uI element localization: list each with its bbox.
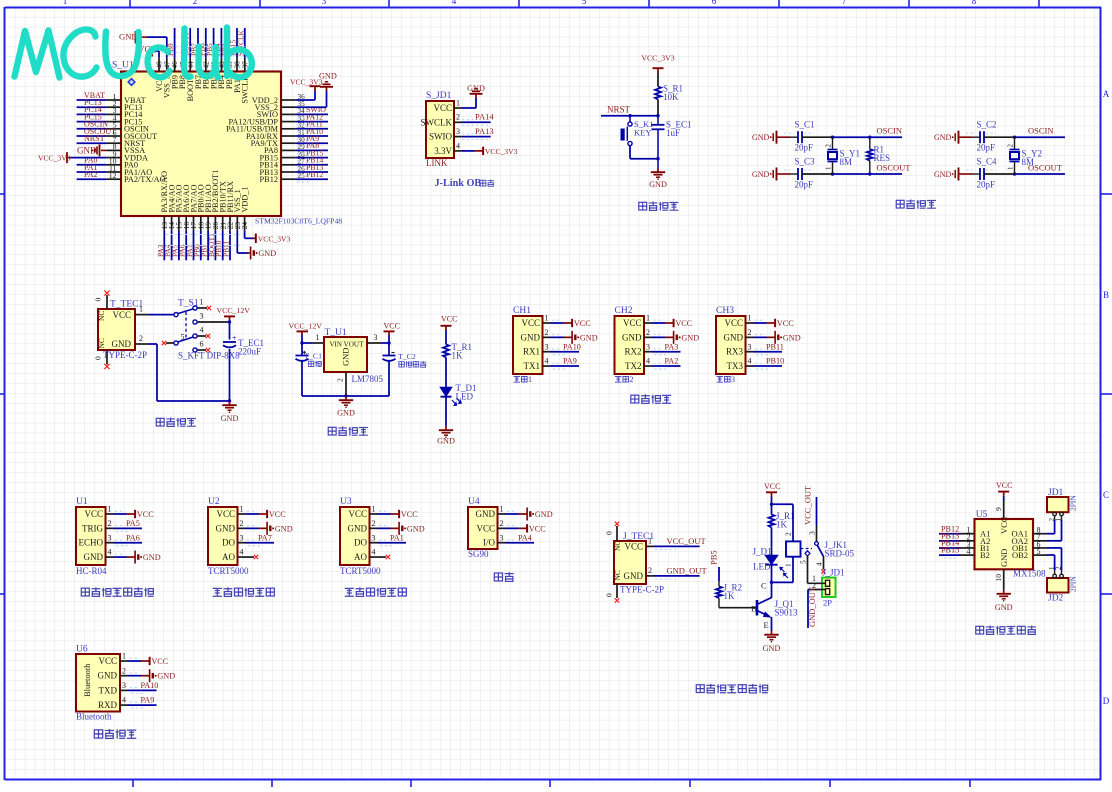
svg-text:1: 1	[748, 314, 752, 323]
svg-text:1: 1	[240, 505, 244, 514]
svg-text:1: 1	[1007, 166, 1015, 170]
svg-text:OSCIN: OSCIN	[1028, 126, 1054, 136]
svg-text:VOUT: VOUT	[344, 340, 365, 348]
svg-text:VCC: VCC	[401, 510, 418, 519]
svg-text:CH1: CH1	[513, 306, 531, 316]
svg-text:GND: GND	[319, 72, 337, 81]
svg-text:GND: GND	[476, 509, 496, 519]
svg-text:RXD: RXD	[98, 700, 118, 710]
svg-text:GND: GND	[84, 552, 104, 562]
svg-text:DO: DO	[222, 538, 235, 548]
svg-text:3: 3	[374, 333, 378, 342]
svg-text:TYPE-C-2P: TYPE-C-2P	[103, 350, 147, 360]
svg-text:3: 3	[500, 533, 504, 542]
svg-text:GND: GND	[934, 133, 952, 142]
svg-text:10: 10	[994, 574, 1003, 582]
svg-text:1: 1	[122, 652, 126, 661]
svg-text:C: C	[1103, 490, 1109, 500]
svg-text:3: 3	[122, 681, 126, 690]
svg-text:ECHO: ECHO	[79, 538, 104, 548]
svg-text:GND: GND	[580, 333, 598, 342]
svg-text:S_JD1: S_JD1	[426, 91, 452, 101]
svg-text:48: 48	[156, 61, 164, 69]
svg-text:2: 2	[139, 334, 143, 343]
svg-text:CH2: CH2	[615, 306, 633, 316]
svg-text:VCC: VCC	[764, 482, 780, 491]
svg-text:2P: 2P	[823, 598, 832, 608]
svg-text:VCC_12V: VCC_12V	[217, 306, 251, 315]
svg-text:DO: DO	[354, 538, 367, 548]
svg-text:4: 4	[200, 326, 204, 335]
svg-text:PB11: PB11	[766, 342, 784, 351]
svg-text:2PIN: 2PIN	[1069, 495, 1078, 511]
svg-text:J_JD1: J_JD1	[822, 568, 845, 578]
svg-text:2: 2	[372, 519, 376, 528]
svg-text:NC: NC	[613, 541, 622, 551]
svg-text:VCC: VCC	[999, 516, 1009, 534]
svg-text:GND: GND	[221, 414, 239, 423]
svg-text:T_C2: T_C2	[398, 352, 416, 361]
svg-text:VCC_12V: VCC_12V	[289, 322, 323, 331]
svg-text:SWCLK: SWCLK	[421, 117, 453, 127]
svg-text:HC-R04: HC-R04	[76, 566, 107, 576]
svg-text:4: 4	[456, 141, 460, 150]
svg-text:VCC: VCC	[84, 509, 103, 519]
svg-text:TX1: TX1	[524, 361, 541, 371]
svg-text:RES: RES	[874, 153, 891, 163]
svg-text:46: 46	[171, 61, 179, 69]
svg-text:VCC: VCC	[529, 524, 546, 533]
svg-text:TRIG: TRIG	[82, 523, 103, 533]
svg-text:VCC: VCC	[724, 318, 743, 328]
svg-text:GND: GND	[467, 84, 485, 93]
svg-text:GND: GND	[275, 524, 293, 533]
svg-text:VCC: VCC	[151, 657, 168, 666]
svg-text:S_KFT DIP-8X8: S_KFT DIP-8X8	[178, 351, 240, 361]
svg-text:NC: NC	[97, 311, 106, 321]
svg-text:GND: GND	[521, 332, 541, 342]
svg-text:VCC: VCC	[623, 318, 642, 328]
svg-text:PB12: PB12	[306, 170, 323, 179]
svg-text:1: 1	[648, 537, 652, 546]
svg-text:47: 47	[163, 61, 171, 69]
svg-text:GND: GND	[724, 332, 744, 342]
svg-text:VDD_1: VDD_1	[240, 187, 249, 213]
svg-text:1uF: 1uF	[666, 128, 680, 138]
svg-text:2: 2	[500, 519, 504, 528]
svg-text:1: 1	[500, 505, 504, 514]
svg-text:GND: GND	[216, 523, 236, 533]
svg-text:VCC: VCC	[521, 318, 540, 328]
svg-text:VCC: VCC	[433, 103, 452, 113]
svg-text:4: 4	[108, 548, 112, 557]
svg-text:0: 0	[94, 298, 103, 302]
svg-text:1: 1	[825, 166, 833, 170]
svg-text:VCC: VCC	[996, 481, 1012, 490]
svg-text:GND: GND	[77, 145, 97, 155]
svg-text:1: 1	[139, 305, 143, 314]
svg-text:VCC_3V3: VCC_3V3	[485, 147, 518, 156]
svg-text:GND: GND	[763, 644, 781, 653]
svg-text:8M: 8M	[1022, 157, 1035, 167]
svg-text:Bluetooth: Bluetooth	[76, 712, 112, 722]
svg-text:VCC: VCC	[777, 319, 794, 328]
svg-text:2: 2	[648, 566, 652, 575]
svg-text:GND_OUT: GND_OUT	[807, 586, 817, 627]
svg-text:20pF: 20pF	[795, 143, 814, 153]
svg-text:2PIN: 2PIN	[1069, 576, 1078, 592]
svg-text:2: 2	[240, 519, 244, 528]
svg-text:24: 24	[241, 222, 249, 230]
svg-text:1: 1	[108, 505, 112, 514]
svg-text:GND: GND	[934, 170, 952, 179]
svg-text:2: 2	[646, 328, 650, 337]
svg-text:5: 5	[582, 0, 587, 6]
svg-text:0: 0	[605, 593, 614, 597]
svg-text:VCC_3V3: VCC_3V3	[290, 78, 323, 87]
svg-text:1: 1	[1055, 518, 1063, 522]
svg-text:4: 4	[815, 562, 824, 566]
svg-text:2: 2	[122, 666, 126, 675]
svg-text:PA10: PA10	[563, 342, 581, 351]
svg-text:PA5: PA5	[126, 519, 140, 528]
svg-text:20pF: 20pF	[977, 180, 996, 190]
svg-text:5: 5	[799, 560, 808, 564]
svg-text:VCC_3V3: VCC_3V3	[258, 234, 291, 243]
svg-text:CH3: CH3	[716, 306, 734, 316]
svg-text:PA9: PA9	[141, 696, 155, 705]
svg-text:2: 2	[1055, 566, 1063, 570]
svg-text:GND: GND	[622, 332, 642, 342]
svg-text:TX3: TX3	[727, 361, 744, 371]
svg-text:E: E	[764, 620, 769, 630]
svg-text:RX2: RX2	[624, 347, 641, 357]
svg-text:VCC: VCC	[137, 510, 154, 519]
svg-text:4: 4	[372, 548, 376, 557]
svg-text:JD2: JD2	[1048, 594, 1064, 604]
svg-text:1: 1	[372, 505, 376, 514]
svg-text:S_C3: S_C3	[795, 157, 816, 167]
svg-text:RX3: RX3	[726, 347, 744, 357]
svg-text:220uF: 220uF	[238, 347, 261, 357]
svg-text:S9013: S9013	[775, 608, 799, 618]
svg-text:S_C4: S_C4	[977, 157, 998, 167]
svg-text:MX1508: MX1508	[1013, 569, 1046, 579]
svg-text:1K: 1K	[452, 351, 464, 361]
svg-text:5: 5	[1037, 547, 1041, 556]
svg-text:2: 2	[825, 144, 833, 148]
svg-text:RX1: RX1	[523, 347, 540, 357]
svg-text:VCC: VCC	[112, 310, 131, 320]
svg-text:GND: GND	[143, 553, 161, 562]
svg-text:4: 4	[240, 548, 244, 557]
svg-text:6: 6	[712, 0, 717, 6]
svg-text:GND: GND	[157, 672, 175, 681]
svg-text:VCC: VCC	[348, 509, 367, 519]
svg-text:TCRT5000: TCRT5000	[208, 566, 249, 576]
svg-text:1: 1	[784, 563, 793, 567]
svg-text:0: 0	[605, 531, 614, 535]
svg-text:2: 2	[545, 328, 549, 337]
svg-text:1: 1	[200, 298, 204, 307]
svg-text:GND: GND	[407, 524, 425, 533]
svg-text:2: 2	[1007, 144, 1015, 148]
svg-text:STM32F103C8T6_LQFP48: STM32F103C8T6_LQFP48	[255, 217, 342, 226]
svg-text:3: 3	[322, 0, 327, 6]
svg-text:3: 3	[808, 531, 817, 535]
svg-text:4: 4	[646, 357, 650, 366]
svg-text:OSCOUT: OSCOUT	[877, 163, 912, 173]
svg-text:1: 1	[63, 0, 68, 6]
svg-text:PB12: PB12	[260, 175, 278, 184]
svg-text:PA14: PA14	[475, 112, 494, 122]
svg-text:VCC: VCC	[441, 315, 457, 324]
svg-text:PB11: PB11	[222, 241, 231, 257]
svg-text:AO: AO	[354, 552, 367, 562]
svg-text:PA6: PA6	[126, 533, 140, 542]
svg-text:LM7805: LM7805	[352, 374, 384, 384]
svg-text:U3: U3	[340, 497, 352, 507]
svg-text:3: 3	[731, 375, 735, 384]
svg-text:LED: LED	[753, 562, 771, 572]
svg-text:2: 2	[193, 0, 198, 6]
svg-text:GND: GND	[995, 603, 1013, 612]
svg-text:20pF: 20pF	[977, 143, 996, 153]
svg-text:OB2: OB2	[1012, 550, 1028, 560]
svg-text:U1: U1	[76, 497, 88, 507]
svg-text:KEY: KEY	[634, 128, 651, 138]
svg-text:PB5: PB5	[709, 550, 719, 565]
svg-text:1: 1	[646, 314, 650, 323]
svg-text:OSCIN: OSCIN	[877, 126, 903, 136]
svg-text:TXD: TXD	[99, 685, 118, 695]
svg-text:GND: GND	[681, 333, 699, 342]
svg-text:8: 8	[972, 0, 977, 6]
svg-text:GND: GND	[337, 409, 355, 418]
svg-text:VCC: VCC	[624, 542, 643, 552]
svg-text:GND: GND	[783, 333, 801, 342]
svg-text:GND: GND	[624, 571, 644, 581]
svg-text:PA2: PA2	[665, 357, 679, 366]
svg-text:VIN: VIN	[330, 340, 342, 348]
svg-text:U4: U4	[468, 497, 480, 507]
svg-text:2: 2	[336, 378, 345, 382]
svg-text:I/O: I/O	[483, 538, 495, 548]
svg-text:B: B	[1103, 290, 1109, 300]
svg-text:TX2: TX2	[625, 361, 642, 371]
svg-text:NC: NC	[97, 338, 106, 348]
svg-text:1: 1	[316, 333, 320, 342]
svg-text:NRST: NRST	[607, 105, 631, 115]
svg-text:1: 1	[528, 375, 532, 384]
svg-text:S_C1: S_C1	[795, 120, 815, 130]
svg-text:PA10: PA10	[141, 681, 159, 690]
svg-text:C: C	[761, 581, 767, 591]
svg-text:10K: 10K	[663, 92, 679, 102]
svg-text:3: 3	[200, 312, 204, 321]
svg-text:4: 4	[748, 357, 752, 366]
svg-text:PA9: PA9	[563, 357, 577, 366]
svg-text:PB10: PB10	[766, 357, 784, 366]
svg-text:PA13: PA13	[475, 126, 494, 136]
svg-text:VCC: VCC	[216, 509, 235, 519]
svg-text:3: 3	[748, 342, 752, 351]
svg-text:VCC_OUT: VCC_OUT	[803, 485, 813, 525]
svg-text:PA4: PA4	[518, 533, 532, 542]
svg-text:1: 1	[456, 98, 460, 107]
svg-text:GND: GND	[341, 348, 351, 366]
svg-text:GND: GND	[535, 510, 553, 519]
svg-text:3: 3	[646, 342, 650, 351]
svg-text:GND: GND	[112, 339, 132, 349]
svg-text:3: 3	[545, 342, 549, 351]
svg-text:GND: GND	[649, 180, 667, 189]
svg-text:J-Link OB: J-Link OB	[435, 178, 482, 189]
svg-text:GND: GND	[98, 671, 118, 681]
svg-text:12: 12	[109, 171, 117, 180]
svg-text:S_C2: S_C2	[977, 120, 997, 130]
svg-text:2: 2	[456, 113, 460, 122]
svg-text:VCC: VCC	[476, 523, 495, 533]
svg-text:VCC_OUT: VCC_OUT	[667, 536, 707, 546]
svg-text:PA7: PA7	[258, 533, 272, 542]
svg-text:VCC: VCC	[675, 319, 692, 328]
svg-text:VCC_3V3: VCC_3V3	[641, 54, 674, 63]
svg-text:LINK: LINK	[426, 158, 448, 168]
svg-text:TCRT5000: TCRT5000	[340, 566, 381, 576]
svg-text:2: 2	[108, 519, 112, 528]
svg-text:+: +	[232, 334, 237, 343]
svg-text:0: 0	[94, 356, 103, 360]
svg-text:A: A	[1103, 89, 1110, 99]
svg-text:NC: NC	[613, 570, 622, 580]
svg-text:TYPE-C-2P: TYPE-C-2P	[620, 585, 664, 595]
svg-text:SWIO: SWIO	[429, 132, 452, 142]
svg-text:4: 4	[452, 0, 457, 6]
svg-text:VCC: VCC	[98, 656, 117, 666]
svg-text:3: 3	[240, 533, 244, 542]
svg-text:VCC: VCC	[269, 510, 286, 519]
svg-text:38: 38	[234, 61, 242, 69]
svg-text:GND: GND	[999, 549, 1009, 567]
svg-text:4: 4	[122, 696, 126, 705]
svg-text:3: 3	[108, 533, 112, 542]
svg-text:20pF: 20pF	[795, 180, 814, 190]
svg-text:T_C1: T_C1	[304, 352, 322, 361]
svg-text:GND: GND	[258, 249, 276, 258]
svg-text:3.3V: 3.3V	[434, 146, 452, 156]
svg-text:AO: AO	[222, 552, 235, 562]
svg-text:B2: B2	[980, 550, 990, 560]
svg-text:44: 44	[187, 61, 195, 69]
svg-text:VCC: VCC	[574, 319, 591, 328]
svg-text:PA2: PA2	[84, 170, 98, 179]
svg-text:U2: U2	[208, 497, 220, 507]
svg-text:8M: 8M	[840, 157, 853, 167]
svg-text:3: 3	[372, 533, 376, 542]
svg-text:4: 4	[967, 547, 971, 556]
svg-text:GND: GND	[437, 437, 455, 446]
svg-text:1K: 1K	[776, 520, 788, 530]
svg-text:GND: GND	[752, 170, 770, 179]
svg-text:PA3: PA3	[665, 342, 679, 351]
svg-text:2: 2	[630, 375, 634, 384]
svg-text:GND_OUT: GND_OUT	[667, 566, 708, 576]
svg-text:VCC: VCC	[384, 322, 400, 331]
svg-text:7: 7	[842, 0, 847, 6]
svg-text:GND: GND	[752, 133, 770, 142]
svg-text:4: 4	[545, 357, 549, 366]
svg-text:1: 1	[545, 314, 549, 323]
svg-text:GND: GND	[348, 523, 368, 533]
svg-text:PB15: PB15	[941, 546, 959, 555]
svg-text:VCC_3V3: VCC_3V3	[38, 153, 71, 162]
svg-text:1K: 1K	[724, 591, 736, 601]
svg-text:2: 2	[748, 328, 752, 337]
svg-text:T_S1: T_S1	[178, 299, 199, 309]
svg-text:2: 2	[784, 532, 793, 536]
svg-text:SG90: SG90	[468, 549, 489, 559]
svg-text:PA1: PA1	[390, 533, 404, 542]
svg-text:3: 3	[456, 127, 460, 136]
svg-text:9: 9	[994, 507, 1003, 511]
svg-text:42: 42	[202, 61, 210, 69]
svg-text:Bluetooth: Bluetooth	[82, 663, 92, 697]
svg-text:NRST: NRST	[84, 134, 105, 143]
svg-text:SRD-05: SRD-05	[825, 549, 855, 559]
svg-text:6: 6	[200, 340, 204, 349]
svg-text:D: D	[1103, 696, 1110, 706]
